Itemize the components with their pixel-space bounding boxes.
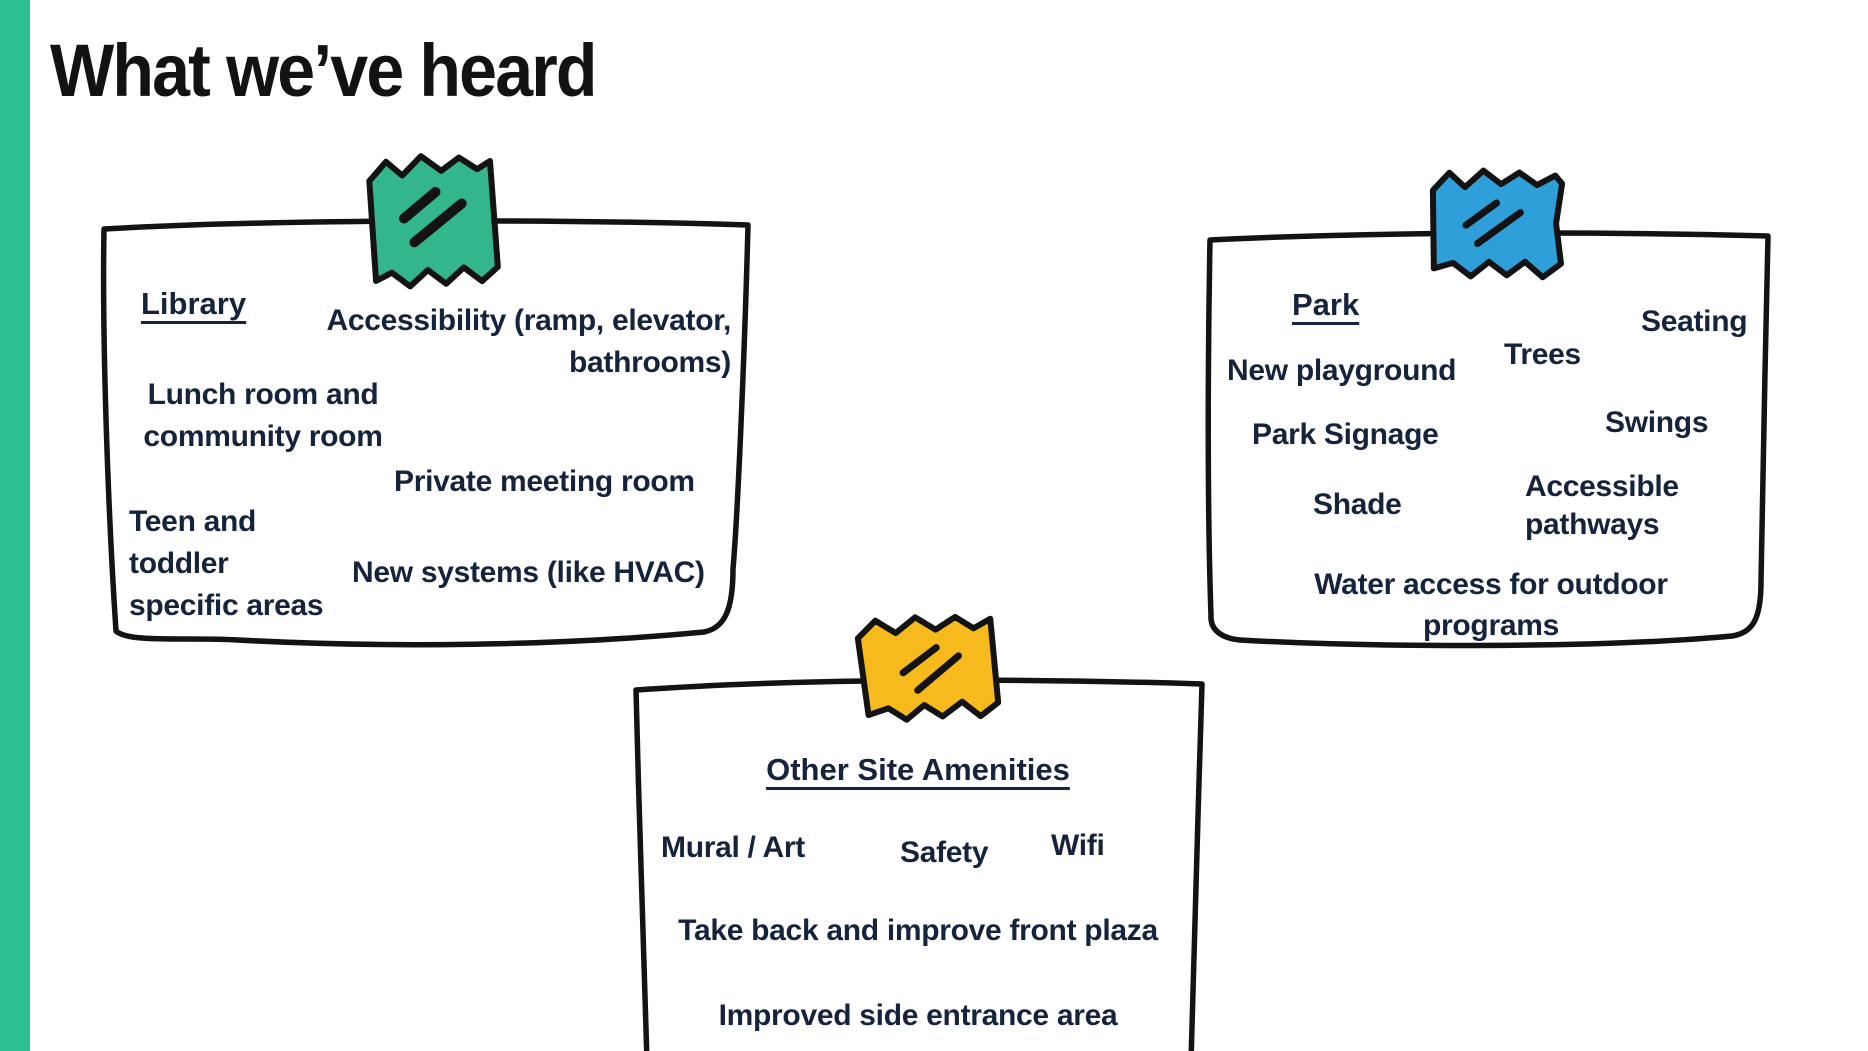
card-park: Park Seating New playground Trees Park S… [1192, 224, 1784, 652]
slide: What we’ve heard Library Accessibility (… [0, 0, 1868, 1051]
accent-bar-fill [0, 0, 30, 1051]
card-item: New playground [1227, 350, 1456, 392]
card-item: New systems (like HVAC) [352, 552, 705, 594]
card-heading-park: Park [1292, 287, 1359, 323]
card-item: Trees [1504, 334, 1581, 376]
card-item: Water access for outdoor programs [1271, 564, 1711, 647]
card-item: Private meeting room [394, 461, 695, 503]
card-item: Seating [1641, 301, 1747, 343]
card-item: Park Signage [1252, 414, 1438, 456]
card-item: Safety [900, 832, 988, 874]
tape-green [349, 145, 516, 296]
card-item: Teen and toddler specific areas [129, 501, 323, 627]
tape-yellow [841, 607, 1011, 733]
card-heading-other-site-amenities: Other Site Amenities [620, 752, 1216, 788]
card-item: Mural / Art [661, 827, 805, 869]
card-item: Accessibility (ramp, elevator, bathrooms… [326, 300, 731, 384]
page-title: What we’ve heard [50, 30, 596, 111]
card-item: Accessible pathways [1525, 468, 1679, 543]
card-item: Swings [1605, 402, 1708, 444]
accent-bar [0, 0, 30, 1051]
card-item: Improved side entrance area [620, 995, 1216, 1037]
card-item: Wifi [1051, 825, 1105, 867]
card-item: Lunch room and community room [138, 374, 388, 458]
card-heading-library: Library [141, 286, 246, 322]
card-item: Shade [1313, 484, 1402, 526]
tape-blue [1418, 160, 1573, 290]
tape-shape [1431, 169, 1564, 278]
tape-shape [857, 615, 998, 722]
card-item: Take back and improve front plaza [620, 910, 1216, 952]
